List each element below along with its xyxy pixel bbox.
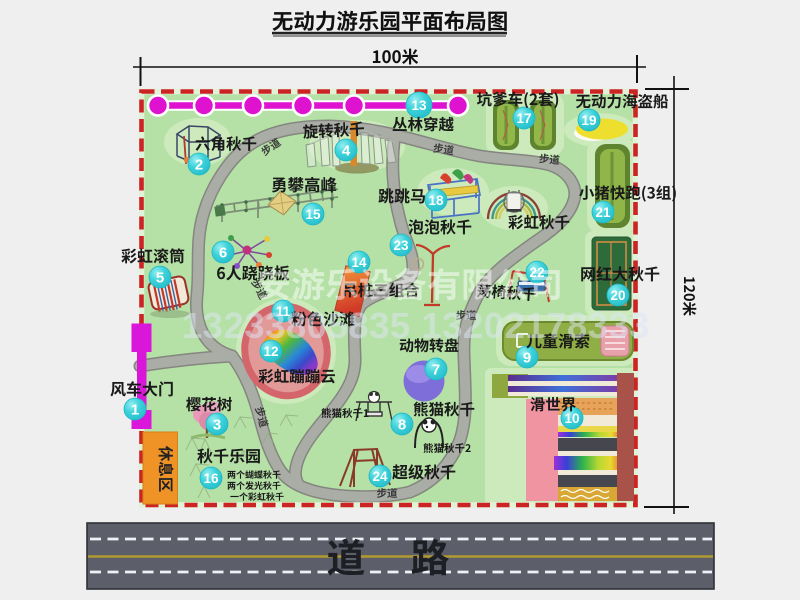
svg-text:19: 19 xyxy=(581,113,596,128)
svg-text:3: 3 xyxy=(213,416,221,433)
svg-text:13233805835 13202178333: 13233805835 13202178333 xyxy=(182,305,650,346)
svg-text:1: 1 xyxy=(131,401,139,418)
svg-text:4: 4 xyxy=(342,142,351,159)
svg-text:5: 5 xyxy=(156,269,164,286)
svg-text:20: 20 xyxy=(610,288,625,303)
svg-text:17: 17 xyxy=(516,111,531,126)
svg-text:12: 12 xyxy=(263,344,278,359)
svg-text:16: 16 xyxy=(203,471,219,486)
svg-text:15: 15 xyxy=(305,207,321,222)
svg-text:10: 10 xyxy=(564,411,579,426)
svg-text:18: 18 xyxy=(428,193,444,208)
svg-text:24: 24 xyxy=(372,469,388,484)
svg-text:9: 9 xyxy=(523,349,531,366)
svg-text:23: 23 xyxy=(393,238,409,253)
svg-text:13: 13 xyxy=(411,98,427,113)
svg-text:2: 2 xyxy=(195,156,203,173)
svg-text:7: 7 xyxy=(432,361,440,378)
svg-text:6: 6 xyxy=(219,244,227,261)
svg-text:8: 8 xyxy=(398,416,406,433)
svg-text:14: 14 xyxy=(351,255,367,270)
svg-text:21: 21 xyxy=(595,205,611,220)
